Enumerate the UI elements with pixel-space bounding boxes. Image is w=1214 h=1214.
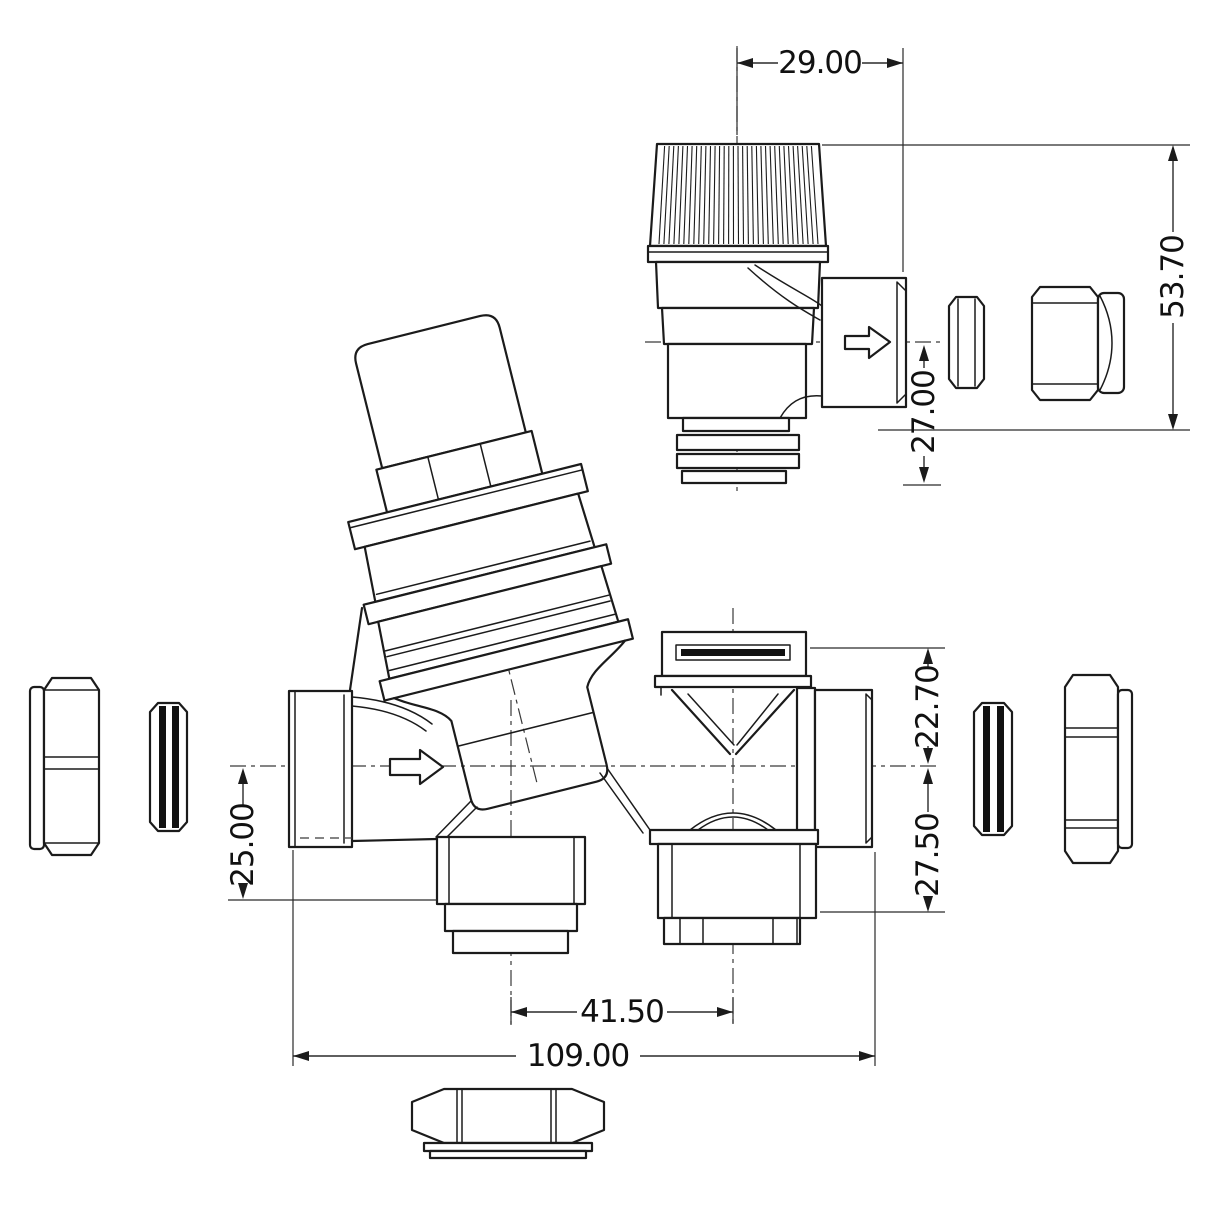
drain-hex [437, 837, 585, 904]
compression-nut-right [1065, 675, 1132, 863]
body-bottom-left [352, 839, 437, 841]
inlet-port [289, 691, 352, 847]
dim-label-overall-length: 109.00 [527, 1038, 629, 1074]
port-flange [650, 830, 818, 844]
cap-base-band [648, 246, 828, 262]
drain-ring [445, 904, 577, 931]
olive-left-outline [150, 703, 187, 831]
compression-nut-top [1032, 287, 1124, 400]
olive-top-outline [949, 297, 984, 388]
port-hex [658, 844, 816, 918]
cartridge-assembly [300, 299, 665, 827]
nut-right-body [1065, 675, 1118, 863]
port-tail [664, 918, 800, 944]
dim-label-outlet-above-centerline: 22.70 [910, 665, 946, 749]
olive-left [150, 703, 187, 831]
compression-nut-left [30, 678, 99, 855]
olive-right-outline [974, 703, 1012, 835]
olive-right-stripe-2 [997, 706, 1004, 832]
dim-label-centerline-to-drain: 25.00 [225, 803, 261, 887]
front-nut-lip [430, 1151, 586, 1158]
relief-valve-body [656, 262, 822, 418]
dim-label-relief-cap-width: 29.00 [778, 45, 862, 81]
nut-left-flange [30, 687, 44, 849]
outlet-port [797, 688, 872, 849]
dim-label-drain-spacing: 41.50 [580, 994, 664, 1030]
tail-ring-3 [677, 454, 799, 468]
drawing-canvas: 29.00 53.70 27.00 [0, 0, 1214, 1214]
body-mid [662, 308, 814, 344]
body-upper [656, 262, 820, 308]
drain-port-right [650, 813, 818, 944]
knurled-cap [650, 144, 826, 246]
nut-left-body [44, 678, 99, 855]
outlet-flange-ring [797, 688, 815, 849]
hose-tail [677, 418, 799, 483]
drain-chamfer-right [600, 768, 650, 833]
drain-port-center [437, 837, 585, 953]
nut-top-body [1032, 287, 1098, 400]
olive-left-stripe-2 [172, 706, 179, 828]
dim-label-relief-outlet-drop: 27.00 [906, 370, 942, 454]
flow-arrow-icon [390, 750, 443, 784]
olive-top [949, 297, 984, 388]
olive-left-stripe-1 [159, 706, 166, 828]
drain-tail [453, 931, 568, 953]
relief-outlet-port [822, 278, 906, 407]
tail-ring-2 [677, 435, 799, 450]
plug-slot-inner [681, 649, 785, 656]
dim-label-relief-height: 53.70 [1155, 235, 1191, 319]
inlet-fillet-2 [352, 706, 426, 731]
nut-right-flange [1118, 690, 1132, 848]
front-nut-washer [424, 1143, 592, 1151]
valve-technical-drawing: 29.00 53.70 27.00 [0, 0, 1214, 1214]
compression-nut-front-view [412, 1089, 604, 1158]
boot-line [458, 712, 594, 746]
relief-valve-view [648, 144, 906, 483]
dim-label-outlet-below-centerline: 27.50 [910, 813, 946, 897]
olive-right-stripe-1 [983, 706, 990, 832]
tail-ring-4 [682, 471, 786, 483]
body-lower [668, 344, 806, 418]
inlet-fillet-1 [352, 697, 432, 724]
body-web-edge [350, 608, 362, 690]
inlet-face [289, 691, 352, 847]
front-nut-hex [412, 1089, 604, 1143]
dimension-27-00: 27.00 [903, 345, 942, 485]
drain-chamfer-left [436, 801, 477, 841]
tail-ring-1 [683, 418, 789, 431]
nut-top-flange [1098, 293, 1124, 393]
olive-right [974, 703, 1012, 835]
plug-flange [655, 676, 811, 687]
dimension-41-50: 41.50 [511, 994, 733, 1030]
outlet-cylinder [815, 690, 872, 847]
